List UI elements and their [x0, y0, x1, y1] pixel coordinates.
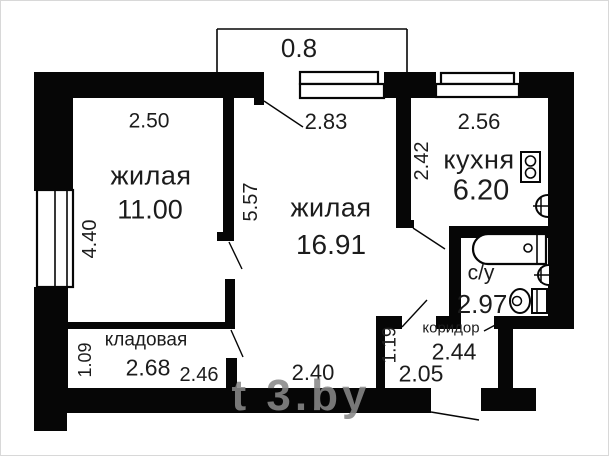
room1-name-label: жилая [110, 163, 191, 190]
dim-corridor-width: 2.05 [399, 363, 444, 386]
window-left-icon [37, 190, 73, 287]
door-swing-room1 [229, 242, 242, 269]
window-kitchen-icon [436, 73, 519, 97]
bathroom-name-label: с/у [468, 263, 495, 284]
toilet-icon [510, 289, 547, 313]
kitchen-area-label: 6.20 [453, 177, 509, 206]
dim-room2-height: 5.57 [241, 183, 261, 222]
door-swing-kitchen [413, 228, 445, 249]
dim-room2-top: 2.83 [305, 111, 348, 133]
dim-corridor-height: 1.19 [381, 327, 400, 364]
leader-corridor-label [484, 323, 499, 331]
bathroom-area-label: 2.97 [457, 291, 508, 317]
site-watermark: t 3.by [232, 371, 371, 421]
stove-icon [521, 152, 540, 182]
dim-room1-height: 4.40 [80, 220, 100, 259]
dim-balcony-width: 0.8 [281, 35, 317, 61]
room2-name-label: жилая [290, 195, 371, 222]
storage-area-label: 2.68 [126, 357, 171, 380]
door-swing-entry [431, 412, 479, 420]
window-balcony-icon [300, 72, 384, 98]
dim-kitchen-height: 2.42 [412, 142, 432, 181]
kitchen-name-label: кухня [443, 147, 514, 174]
floor-plan: 0.8 2.50 жилая 11.00 4.40 2.83 5.57 жила… [0, 0, 609, 456]
leader-balcony-door [264, 101, 303, 127]
door-swing-storage [231, 330, 243, 357]
room1-area-label: 11.00 [117, 197, 183, 224]
kitchen-sink-icon [533, 195, 548, 217]
dim-storage-door: 2.46 [180, 365, 219, 385]
bathtub-icon [473, 234, 546, 264]
corridor-name-label: коридор [422, 321, 479, 336]
bathroom-sink-icon [534, 265, 549, 285]
dim-room1-width: 2.50 [129, 111, 170, 132]
room2-area-label: 16.91 [296, 231, 366, 259]
dim-storage-height: 1.09 [76, 342, 94, 377]
dim-kitchen-width: 2.56 [458, 111, 501, 133]
storage-name-label: кладовая [105, 331, 188, 350]
